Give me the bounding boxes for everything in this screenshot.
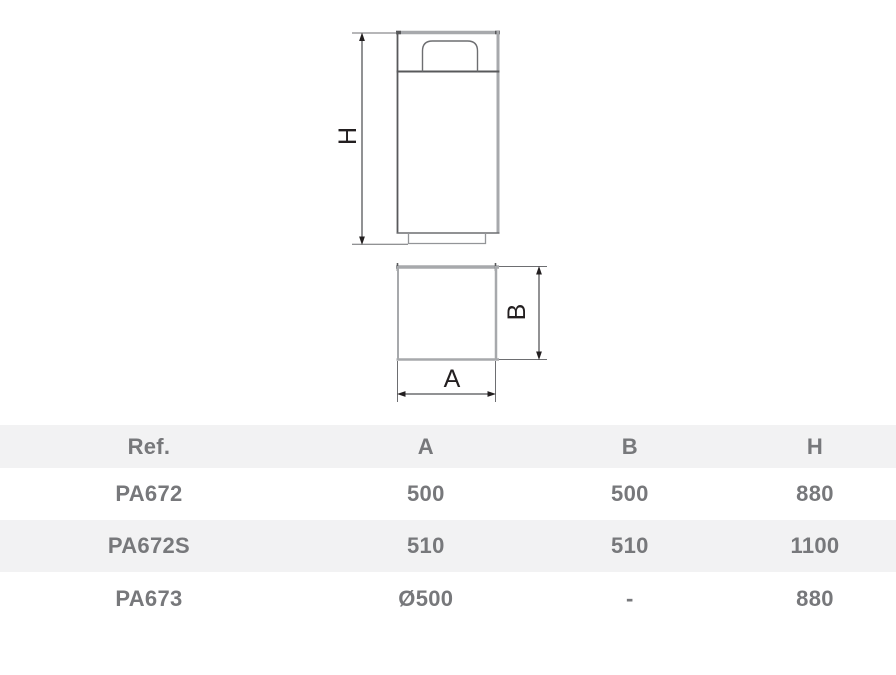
- b-label: B: [503, 304, 531, 321]
- cell-a: Ø500: [298, 572, 554, 625]
- cell-b: 500: [554, 468, 706, 520]
- cell-b: 510: [554, 520, 706, 572]
- h-arrow-down-icon: [359, 237, 365, 246]
- product-spec-sheet: H B: [0, 0, 896, 675]
- h-label: H: [334, 127, 362, 145]
- header-b: B: [554, 425, 706, 468]
- cell-a: 510: [298, 520, 554, 572]
- h-arrow-up-icon: [359, 33, 365, 42]
- header-h: H: [706, 425, 896, 468]
- cell-a: 500: [298, 468, 554, 520]
- b-dimension: B: [499, 266, 547, 360]
- cell-h: 880: [706, 468, 896, 520]
- dimension-table: Ref. A B H PA672 500 500 880 PA672S 510 …: [0, 425, 896, 625]
- cell-h: 1100: [706, 520, 896, 572]
- table-row: PA673 Ø500 - 880: [0, 572, 896, 625]
- bin-flap-opening: [423, 41, 478, 72]
- bin-dimension-diagram: H B: [0, 0, 896, 425]
- cell-b: -: [554, 572, 706, 625]
- cell-ref: PA672: [0, 468, 298, 520]
- top-view-drawing: [396, 263, 499, 360]
- b-arrow-up-icon: [536, 266, 542, 275]
- table-row: PA672S 510 510 1100: [0, 520, 896, 572]
- a-arrow-left-icon: [397, 391, 406, 397]
- b-arrow-down-icon: [536, 352, 542, 361]
- technical-drawing: H B: [0, 0, 896, 425]
- a-dimension: A: [397, 361, 496, 402]
- front-view-drawing: [396, 31, 500, 244]
- cell-h: 880: [706, 572, 896, 625]
- table-row: PA672 500 500 880: [0, 468, 896, 520]
- header-a: A: [298, 425, 554, 468]
- header-ref: Ref.: [0, 425, 298, 468]
- table-header-row: Ref. A B H: [0, 425, 896, 468]
- cell-ref: PA673: [0, 572, 298, 625]
- cell-ref: PA672S: [0, 520, 298, 572]
- a-arrow-right-icon: [488, 391, 497, 397]
- a-label: A: [444, 365, 461, 393]
- bin-base: [409, 233, 486, 244]
